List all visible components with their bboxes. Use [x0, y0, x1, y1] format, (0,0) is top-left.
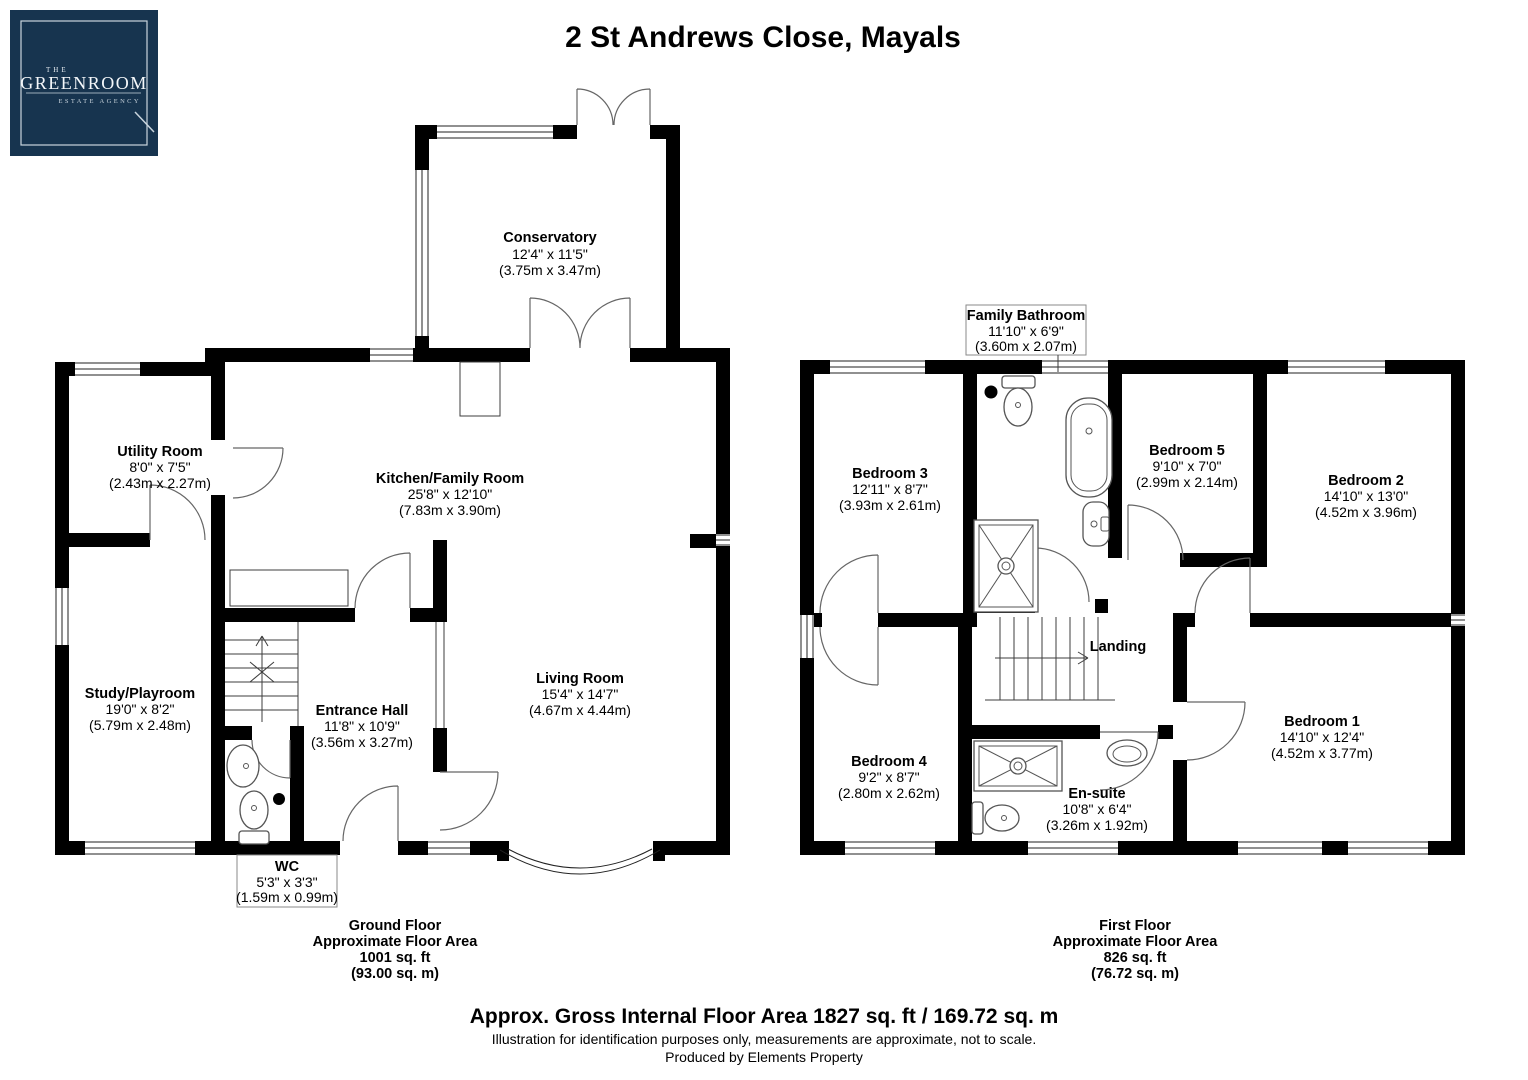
conservatory-metric: (3.75m x 3.47m)	[499, 262, 601, 278]
landing-name: Landing	[1090, 639, 1146, 655]
bay-window	[500, 849, 660, 874]
ensuite-name: En-suite	[1068, 786, 1125, 802]
footer: Approx. Gross Internal Floor Area 1827 s…	[470, 1005, 1059, 1065]
bedroom2-metric: (4.52m x 3.96m)	[1315, 504, 1417, 520]
wc-fixtures	[227, 745, 285, 844]
bedroom5-metric: (2.99m x 2.14m)	[1136, 474, 1238, 490]
study-metric: (5.79m x 2.48m)	[89, 717, 191, 733]
first-staircase	[985, 617, 1115, 700]
page-title: 2 St Andrews Close, Mayals	[565, 21, 961, 54]
first-floor-area-caption: First Floor Approximate Floor Area 826 s…	[1053, 918, 1219, 982]
ensuite-imperial: 10'8" x 6'4"	[1063, 801, 1132, 817]
disclaimer-text: Illustration for identification purposes…	[492, 1031, 1036, 1047]
ground-area-line1: Ground Floor	[349, 918, 442, 934]
ground-floor-walls	[55, 125, 730, 861]
bedroom4-metric: (2.80m x 2.62m)	[838, 785, 940, 801]
floorplan-canvas: THE GREENROOM ESTATE AGENCY 2 St Andrews…	[0, 0, 1528, 1080]
first-area-line3: 826 sq. ft	[1104, 950, 1167, 966]
gross-area-text: Approx. Gross Internal Floor Area 1827 s…	[470, 1005, 1059, 1028]
wc-door-stop-dot	[273, 793, 285, 805]
ground-area-line2: Approximate Floor Area	[313, 934, 479, 950]
ground-floor-plan: Conservatory 12'4" x 11'5" (3.75m x 3.47…	[55, 89, 730, 982]
bathroom-fixtures	[974, 376, 1112, 612]
study-imperial: 19'0" x 8'2"	[106, 701, 175, 717]
first-area-line2: Approximate Floor Area	[1053, 934, 1219, 950]
study-name: Study/Playroom	[85, 686, 195, 702]
bathroom-imperial: 11'10" x 6'9"	[988, 323, 1064, 339]
bathroom-name: Family Bathroom	[967, 308, 1085, 324]
hall-glazed-screen	[436, 622, 444, 728]
conservatory-imperial: 12'4" x 11'5"	[512, 246, 588, 262]
bedroom1-name: Bedroom 1	[1284, 714, 1360, 730]
bedroom3-metric: (3.93m x 2.61m)	[839, 497, 941, 513]
bedroom4-name: Bedroom 4	[851, 754, 927, 770]
ground-staircase	[225, 622, 298, 726]
bedroom2-imperial: 14'10" x 13'0"	[1324, 488, 1409, 504]
first-area-line4: (76.72 sq. m)	[1091, 966, 1179, 982]
conservatory-name: Conservatory	[503, 230, 596, 246]
utility-name: Utility Room	[117, 444, 202, 460]
floorplan-page: THE GREENROOM ESTATE AGENCY 2 St Andrews…	[0, 0, 1528, 1080]
ground-area-line3: 1001 sq. ft	[360, 950, 431, 966]
utility-imperial: 8'0" x 7'5"	[129, 459, 190, 475]
first-area-line1: First Floor	[1099, 918, 1171, 934]
bathroom-toilet-cistern-icon	[1002, 376, 1035, 388]
ground-area-line4: (93.00 sq. m)	[351, 966, 439, 982]
bedroom5-name: Bedroom 5	[1149, 443, 1225, 459]
bedroom2-name: Bedroom 2	[1328, 473, 1404, 489]
bedroom3-imperial: 12'11" x 8'7"	[852, 481, 928, 497]
bathroom-metric: (3.60m x 2.07m)	[975, 338, 1077, 354]
ensuite-shower-drain-icon	[1010, 758, 1026, 774]
entrance-hall-name: Entrance Hall	[316, 703, 409, 719]
credit-text: Produced by Elements Property	[665, 1049, 863, 1065]
kitchen-unit	[460, 362, 500, 416]
entrance-hall-metric: (3.56m x 3.27m)	[311, 734, 413, 750]
kitchen-counter	[230, 570, 348, 606]
bedroom1-metric: (4.52m x 3.77m)	[1271, 745, 1373, 761]
ground-floor-area-caption: Ground Floor Approximate Floor Area 1001…	[313, 918, 479, 982]
bedroom4-imperial: 9'2" x 8'7"	[858, 769, 919, 785]
utility-metric: (2.43m x 2.27m)	[109, 475, 211, 491]
bedroom5-imperial: 9'10" x 7'0"	[1153, 458, 1222, 474]
living-room-imperial: 15'4" x 14'7"	[542, 686, 619, 702]
wc-toilet-cistern-icon	[239, 831, 269, 844]
living-room-metric: (4.67m x 4.44m)	[529, 702, 631, 718]
wc-imperial: 5'3" x 3'3"	[256, 874, 317, 890]
kitchen-name: Kitchen/Family Room	[376, 471, 524, 487]
bedroom1-imperial: 14'10" x 12'4"	[1280, 729, 1365, 745]
wc-metric: (1.59m x 0.99m)	[236, 889, 338, 905]
first-floor-plan: Family Bathroom 11'10" x 6'9" (3.60m x 2…	[800, 305, 1465, 982]
bathroom-sink-icon	[1083, 502, 1109, 546]
agency-logo: THE GREENROOM ESTATE AGENCY	[10, 10, 158, 156]
bathroom-shower-drain-icon	[998, 558, 1014, 574]
ensuite-toilet-cistern-icon	[972, 802, 983, 834]
kitchen-imperial: 25'8" x 12'10"	[408, 486, 493, 502]
wc-name: WC	[275, 859, 300, 875]
stair-direction-arrow	[250, 636, 274, 722]
entrance-hall-imperial: 11'8" x 10'9"	[324, 718, 400, 734]
logo-tagline-text: ESTATE AGENCY	[59, 98, 142, 105]
kitchen-metric: (7.83m x 3.90m)	[399, 502, 501, 518]
bedroom3-name: Bedroom 3	[852, 466, 928, 482]
logo-name-text: GREENROOM	[20, 73, 148, 93]
ensuite-metric: (3.26m x 1.92m)	[1046, 817, 1148, 833]
bathroom-door-stop-dot	[985, 386, 998, 399]
living-room-name: Living Room	[536, 671, 624, 687]
